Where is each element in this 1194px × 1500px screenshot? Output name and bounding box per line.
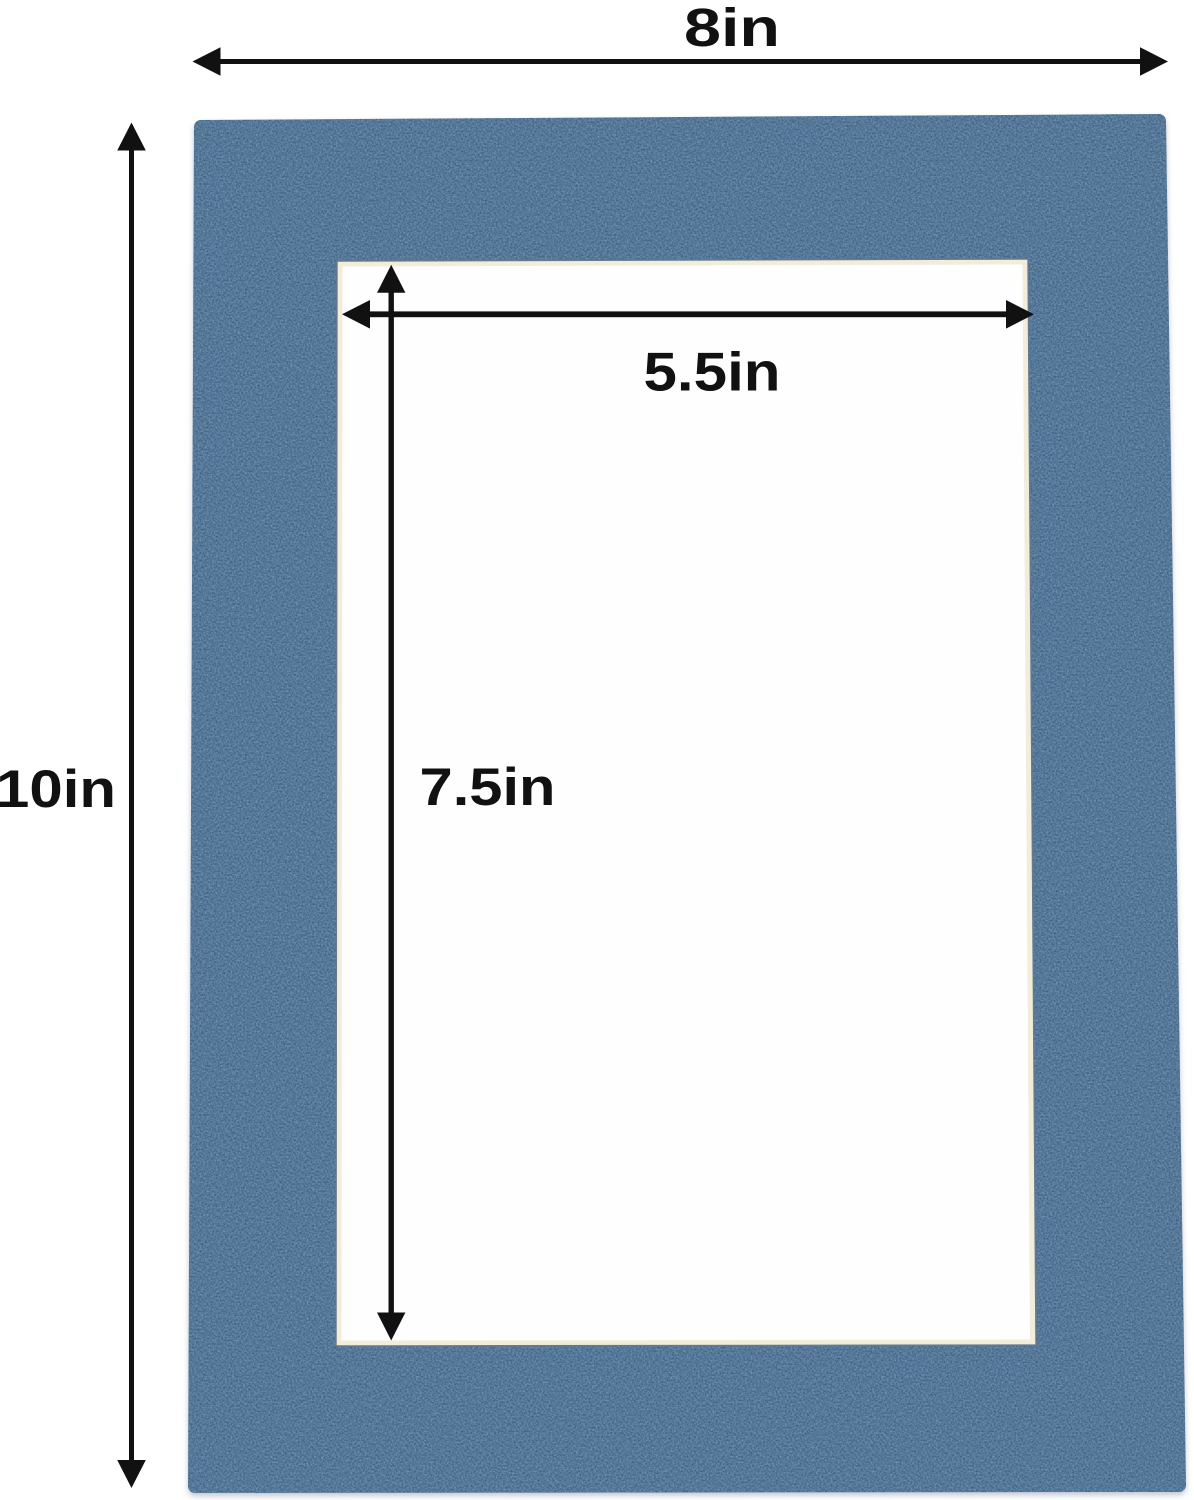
svg-text:7.5in: 7.5in (420, 758, 556, 817)
svg-text:10in: 10in (0, 760, 116, 819)
svg-text:5.5in: 5.5in (644, 341, 781, 403)
svg-text:8in: 8in (684, 0, 780, 58)
